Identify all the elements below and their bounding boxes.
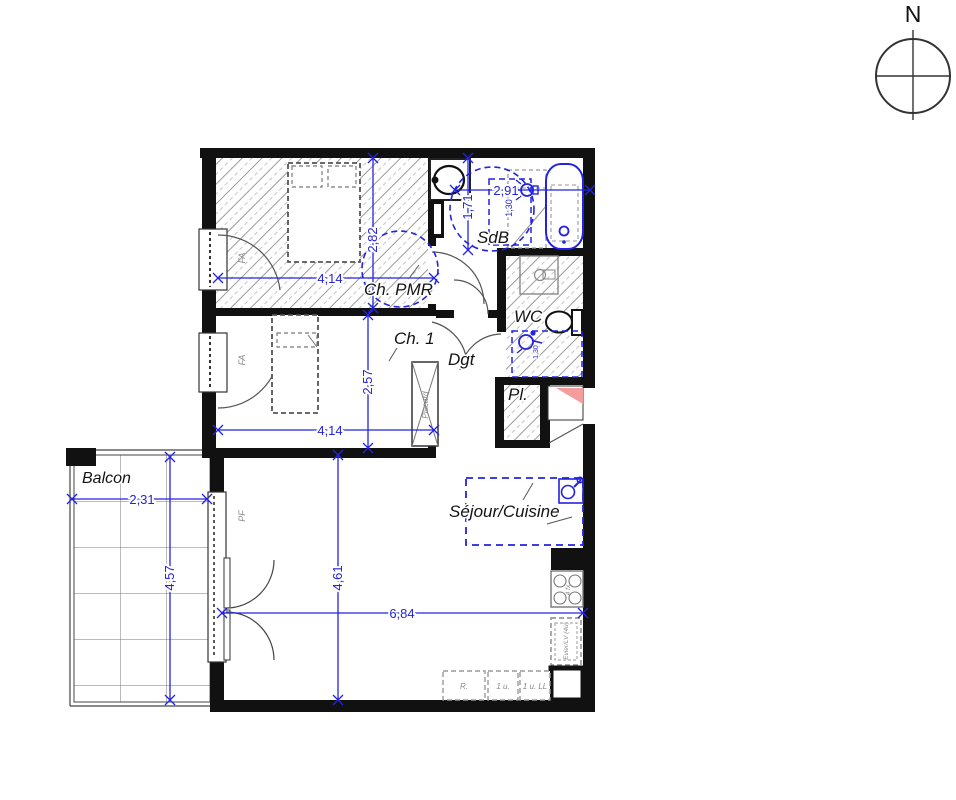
floor-plan-drawing: N [0,0,956,800]
wall-left-2 [202,290,216,333]
door-swing-ch-pmr [432,252,484,304]
dim-balcon-height: 4,57 [162,565,177,590]
dim-ch-pmr-width: 4,14 [317,271,342,286]
kitchen-corner-block [551,668,583,700]
dim-sejour-height: 4,61 [330,565,345,590]
wall-wc-left [497,248,506,332]
label-dgt: Dgt [448,350,476,369]
label-window-fa-1: FA [237,253,247,264]
dim-sdb-zone: 1,30 [504,199,514,217]
wall-pl-left [495,377,504,448]
north-arrow: N [876,1,950,120]
label-placard: Placard [421,391,430,419]
label-sejour: Séjour/Cuisine [449,502,560,521]
leader-sejour-1 [523,483,533,500]
pf-door-swing-bottom [226,612,274,660]
dim-sejour-width: 6,84 [389,606,414,621]
dim-ch1-width: 4,14 [317,423,342,438]
window-fa-2 [199,333,227,392]
label-sdb: SdB [477,228,509,247]
wall-pl-bottom [495,440,549,448]
label-hob: 4 fx [565,584,572,595]
dim-sdb-height: 1,71 [460,194,475,219]
dim-balcon-width: 2,31 [129,492,154,507]
wall-balcony-stub [66,448,96,466]
dim-ch1-height: 2,57 [360,369,375,394]
wall-bedrooms-partition [214,308,428,316]
dim-ch-pmr-height: 2,82 [365,227,380,252]
label-unit-2: 1 u. LL [523,682,547,691]
bathtub-drain [560,227,569,236]
pillow-left [292,166,322,187]
radiator [431,200,444,238]
label-ch-pmr: Ch. PMR [364,280,433,299]
wall-hall-mid [428,304,436,316]
bed-single-pillow [277,333,317,347]
wall-sejour-partition [202,448,436,458]
wall-pl-top [495,377,595,385]
wall-left-3 [202,392,216,455]
washbasin [430,159,470,200]
balcony [70,450,224,706]
wall-top [200,148,595,158]
door-swing-sdb [454,280,488,314]
entry-door-marker [548,386,583,420]
pf-door-swing-top [226,560,274,608]
kitchen-units [443,571,583,700]
label-sink-unit: Evier/LV (4u) [563,622,570,660]
bathtub-drain-dot [562,240,566,244]
window-fa-1 [199,229,227,290]
wall-sdb-bottom-left [436,310,454,318]
hatched-floors [216,158,583,440]
label-wc: WC [514,307,543,326]
wall-left-1 [202,148,216,229]
label-window-fa-2: FA [237,355,247,366]
bed-single [272,315,318,413]
wall-wc-top [506,248,595,256]
label-fridge: R. [460,682,468,691]
kitchen-sink-icon [559,477,583,503]
floor-plan-page: N [0,0,956,800]
entry-door-leaf [549,424,583,443]
dim-sdb-width: 2,91 [493,183,518,198]
wall-right-upper [583,148,595,388]
label-ch1: Ch. 1 [394,329,435,348]
wall-bottom [214,700,595,712]
label-pl: Pl. [508,385,528,404]
leader-ch1 [389,348,397,361]
label-balcon: Balcon [82,470,131,487]
label-unit-1: 1 u. [496,682,509,691]
pillow-right [328,166,356,187]
label-window-pf: PF [237,510,247,522]
north-label: N [905,1,922,27]
dim-wc-zone: 1,30 [533,345,540,359]
wall-kitchen-block [551,548,583,570]
